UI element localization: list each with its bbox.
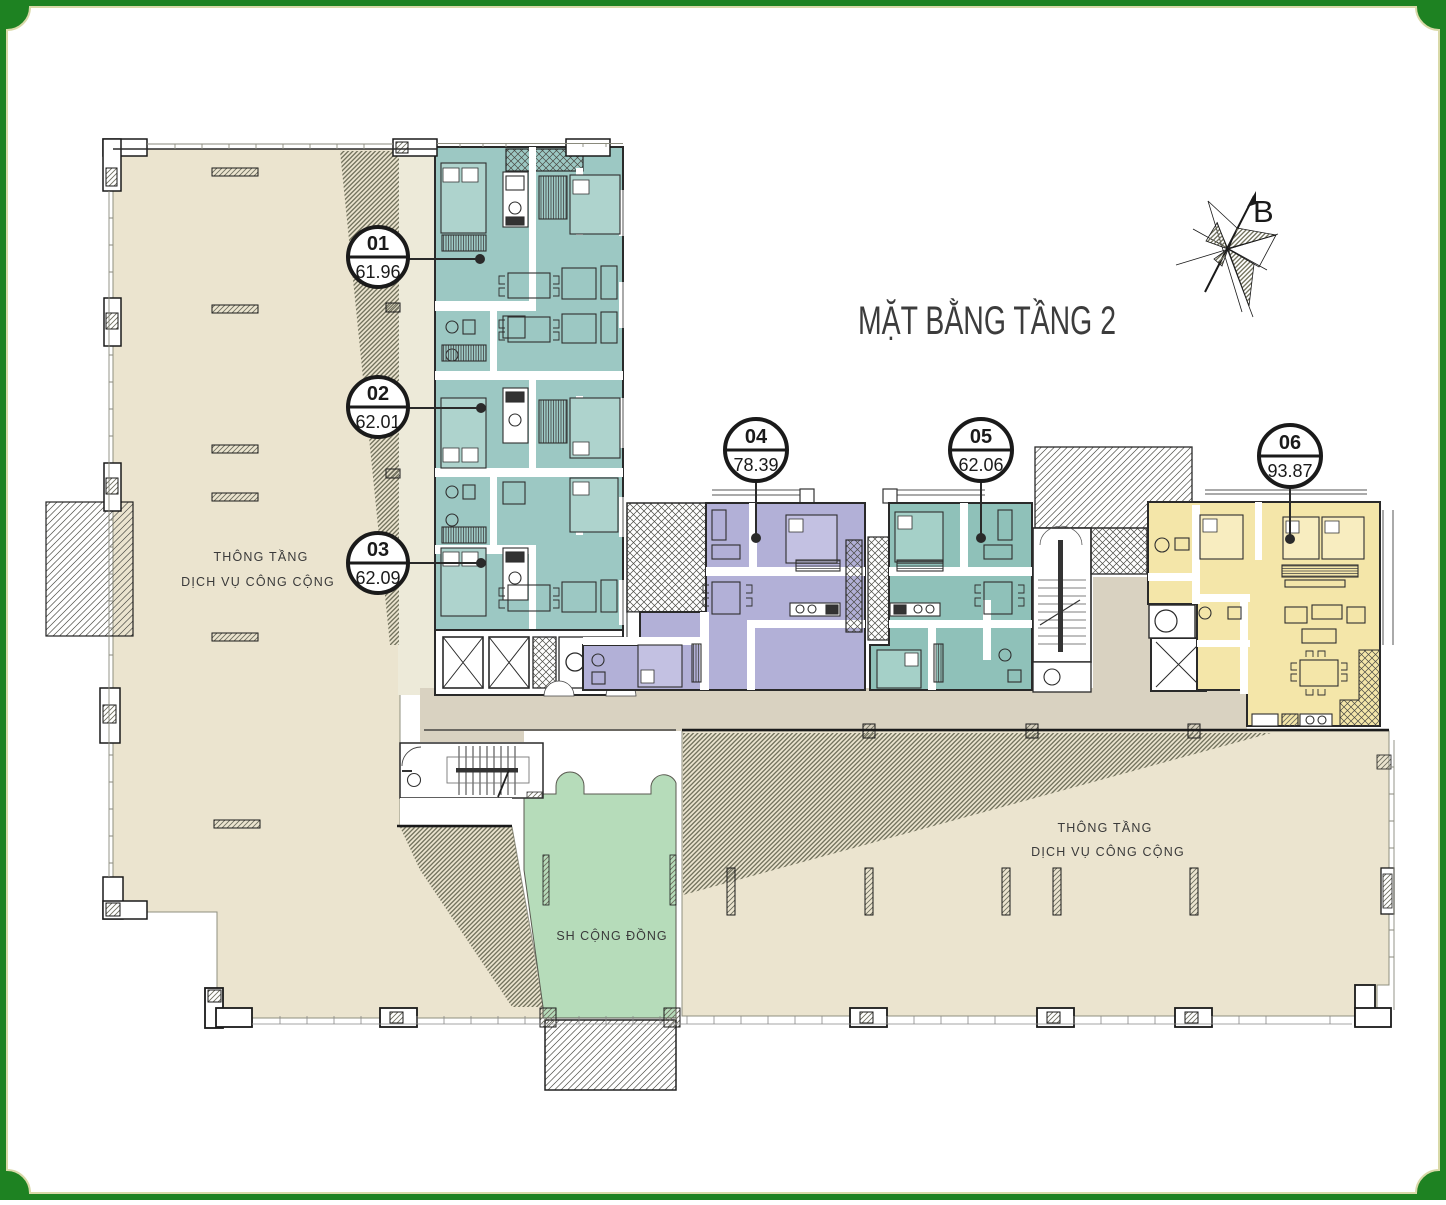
svg-text:THÔNG TẦNG: THÔNG TẦNG xyxy=(213,549,308,564)
svg-text:01: 01 xyxy=(367,233,389,255)
svg-text:62.06: 62.06 xyxy=(958,455,1003,475)
svg-text:05: 05 xyxy=(970,426,992,448)
svg-text:62.01: 62.01 xyxy=(355,412,400,432)
svg-text:62.09: 62.09 xyxy=(355,568,400,588)
svg-text:DỊCH VỤ CÔNG CỘNG: DỊCH VỤ CÔNG CỘNG xyxy=(181,574,335,589)
svg-text:DỊCH VỤ CÔNG CỘNG: DỊCH VỤ CÔNG CỘNG xyxy=(1031,844,1185,859)
svg-text:06: 06 xyxy=(1279,432,1301,454)
svg-text:02: 02 xyxy=(367,383,389,405)
svg-text:MẶT BẰNG TẦNG 2: MẶT BẰNG TẦNG 2 xyxy=(858,297,1116,343)
svg-text:B: B xyxy=(1253,194,1274,229)
svg-text:THÔNG TẦNG: THÔNG TẦNG xyxy=(1057,820,1152,835)
svg-text:04: 04 xyxy=(745,426,768,448)
svg-text:SH CỘNG ĐỒNG: SH CỘNG ĐỒNG xyxy=(556,928,667,943)
svg-text:93.87: 93.87 xyxy=(1267,461,1312,481)
svg-text:61.96: 61.96 xyxy=(355,262,400,282)
svg-text:78.39: 78.39 xyxy=(733,455,778,475)
svg-text:03: 03 xyxy=(367,539,389,561)
